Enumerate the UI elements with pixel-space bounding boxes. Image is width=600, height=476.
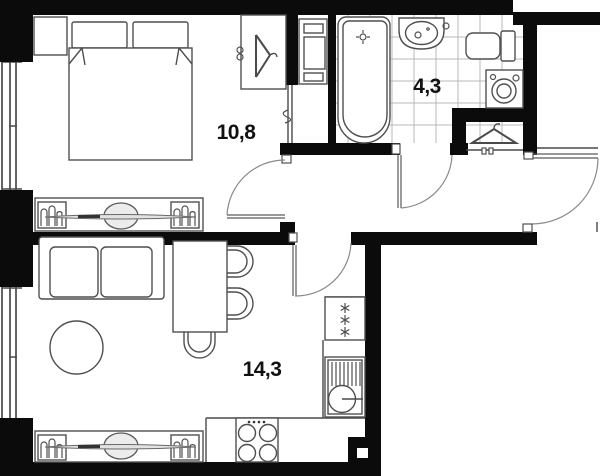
room-area-label: 10,8 [217, 121, 257, 144]
stove [236, 418, 278, 462]
sofa [39, 237, 164, 299]
blanket [69, 48, 192, 160]
tv-screen-dark [78, 445, 100, 448]
bedroom-window [2, 62, 22, 190]
bedroom: 10,8 [34, 15, 327, 231]
door-arc [227, 160, 285, 215]
entrance-door [523, 148, 598, 232]
door-leaf [227, 215, 285, 218]
chair [227, 288, 253, 319]
pillow [72, 22, 127, 48]
door-jamb [289, 233, 297, 242]
door-leaf [398, 155, 401, 208]
wardrobe [237, 15, 286, 89]
bathtub [338, 17, 390, 143]
coffee-table [50, 321, 103, 374]
tv-console [35, 198, 203, 231]
door-jamb [282, 155, 291, 163]
door-arc [532, 158, 598, 224]
coat-hanger-icon [472, 124, 516, 143]
pillow [133, 22, 188, 48]
door-leaf [293, 245, 296, 296]
door-hinge [524, 152, 533, 159]
niche-partition [288, 85, 292, 143]
squiggle-symbol [283, 110, 290, 123]
room-area-label: 14,3 [243, 358, 282, 381]
floor-plan: 10,8 4,3 [0, 0, 600, 476]
door-arc [401, 155, 452, 208]
washing-machine [486, 70, 523, 108]
kitchen-sink [325, 357, 365, 417]
bedroom-door [227, 155, 291, 218]
fridge [325, 297, 365, 340]
living-room-door [289, 233, 351, 296]
entrance-threshold [537, 148, 598, 232]
tv-screen-dark [78, 215, 100, 218]
bed [69, 22, 192, 160]
room-area-label: 4,3 [413, 75, 441, 98]
hall-closet [466, 124, 523, 154]
toilet [466, 31, 515, 61]
chair [227, 246, 253, 277]
door-stop [523, 224, 532, 232]
chair [184, 332, 215, 358]
door-pivot-mark [482, 148, 486, 154]
nightstand [34, 17, 67, 55]
living-window [2, 287, 22, 427]
tv-console [35, 431, 203, 462]
niche-cabinet [299, 19, 327, 84]
door-arc [295, 243, 351, 296]
bathroom-door [392, 144, 452, 208]
sink [399, 18, 449, 49]
dining-table [173, 241, 227, 332]
kitchen [206, 297, 365, 462]
door-leaf [533, 154, 598, 158]
door-jamb [392, 144, 400, 154]
door-pivot-mark [489, 148, 493, 154]
shaft-notch [357, 448, 368, 458]
living-kitchen: 14,3 [35, 237, 365, 462]
